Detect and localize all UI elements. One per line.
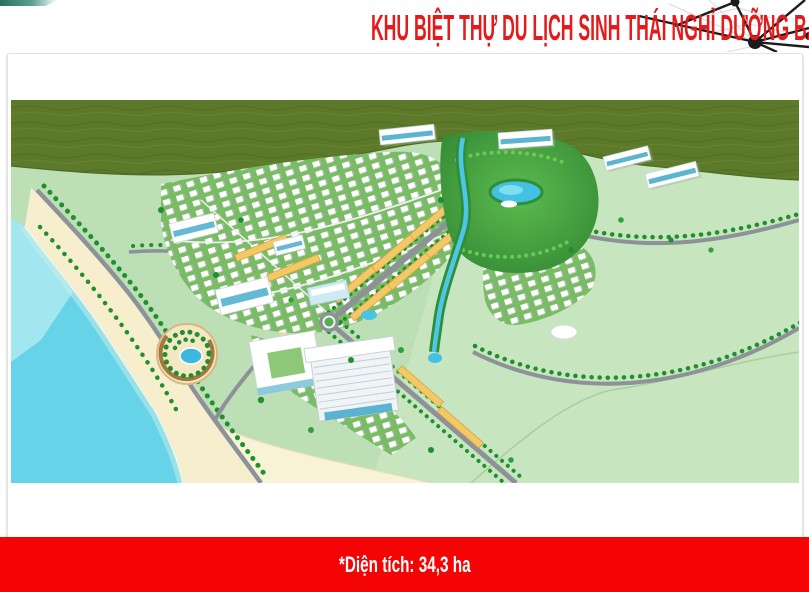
- slide: [7, 53, 803, 538]
- page-root: KHU BIỆT THỰ DU LỊCH SINH THÁI NGHỈ DƯỠN…: [0, 0, 809, 592]
- page-title: KHU BIỆT THỰ DU LỊCH SINH THÁI NGHỈ DƯỠN…: [371, 5, 809, 51]
- area-label: *Diện tích: 34,3 ha: [339, 552, 471, 578]
- footer-bar: *Diện tích: 34,3 ha: [0, 537, 809, 592]
- site-plan-image: [11, 100, 799, 483]
- header-band: KHU BIỆT THỰ DU LỊCH SINH THÁI NGHỈ DƯỠN…: [0, 5, 809, 51]
- hotel-tower: [304, 336, 403, 422]
- beach-club: [157, 324, 217, 384]
